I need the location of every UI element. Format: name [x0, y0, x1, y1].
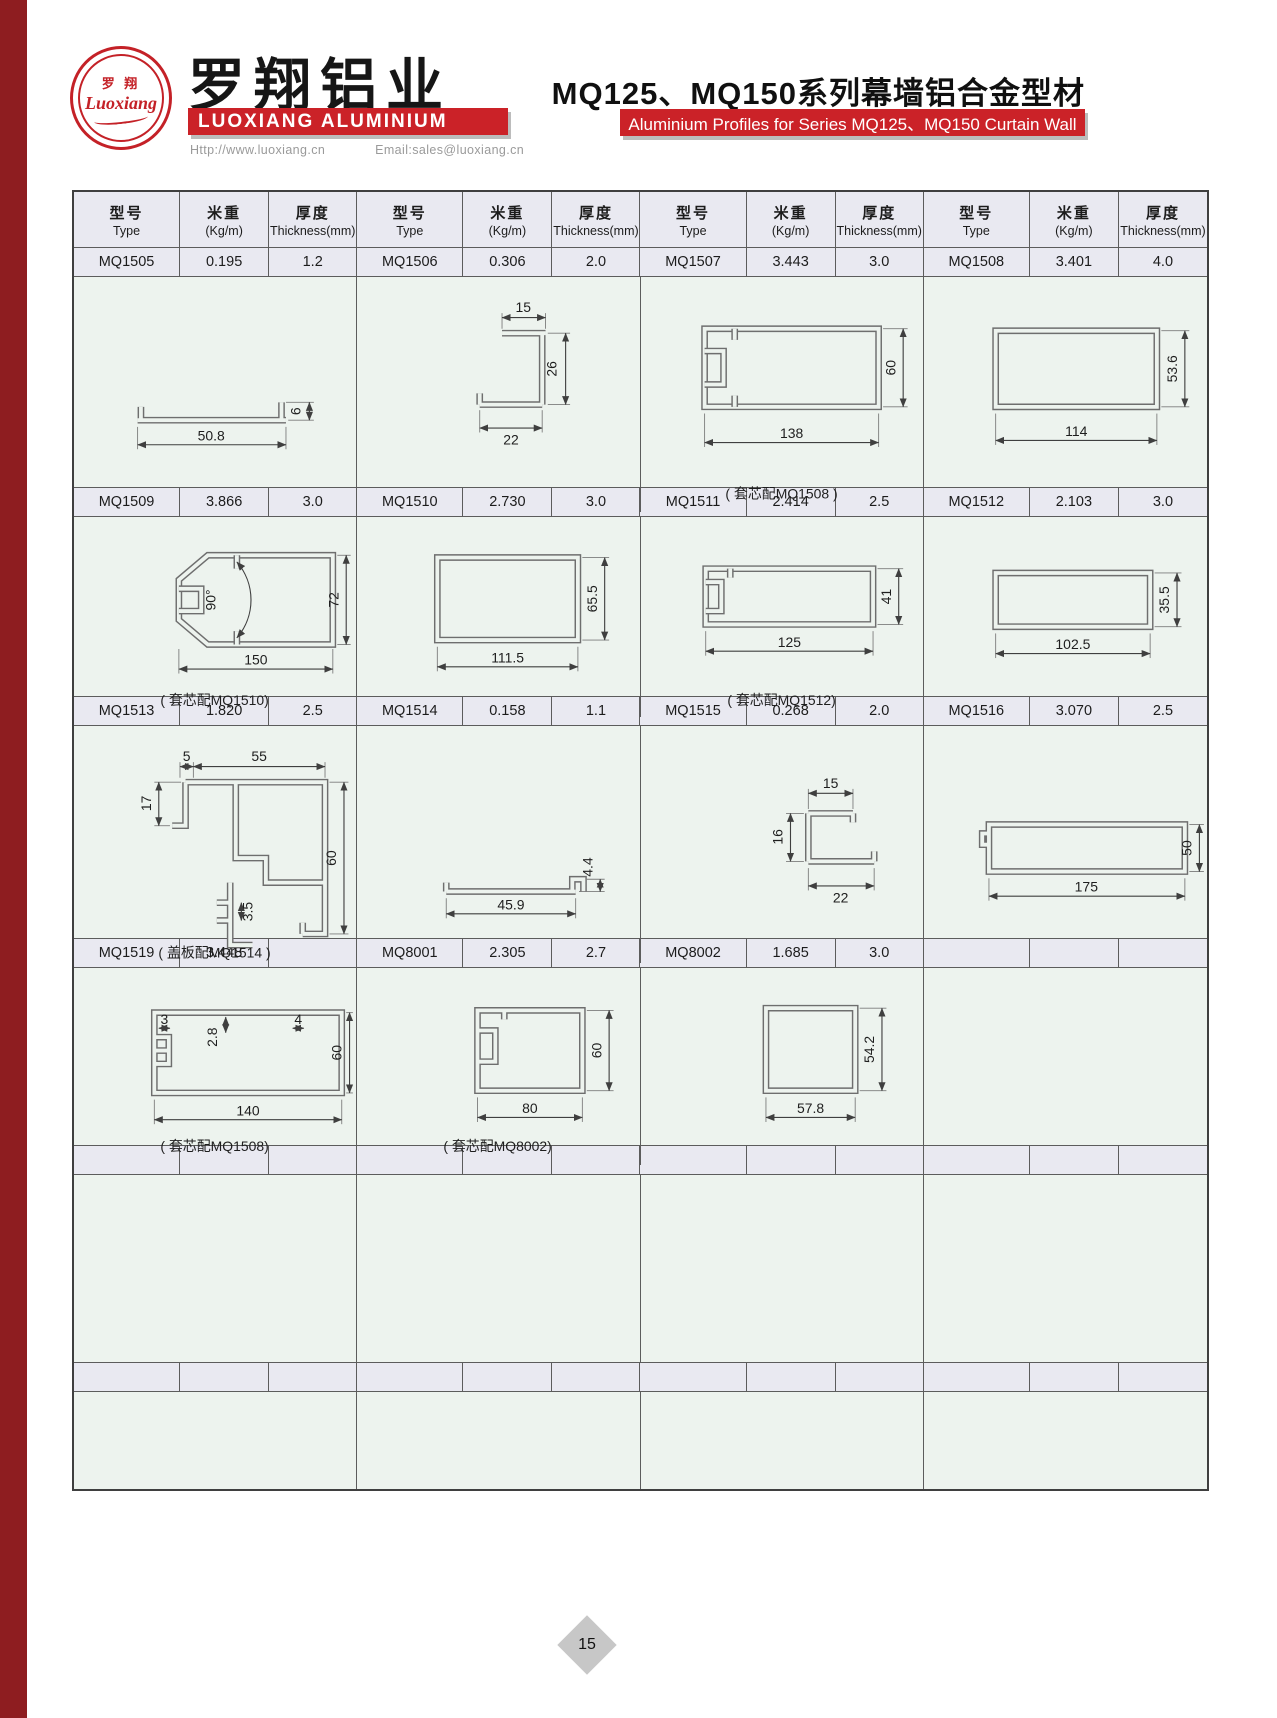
col-header-weight: 米重(Kg/m): [747, 192, 836, 247]
col-header-thickness: 厚度Thickness(mm): [552, 192, 640, 247]
profile-drawing-mq1512: 102.5 35.5: [924, 517, 1207, 717]
drawing-row-5-empty: [74, 1175, 1207, 1363]
profile-drawing-mq1509: 90° 150 72 ( 套芯配MQ1510): [74, 517, 356, 717]
col-header-type-cn: 型号: [393, 202, 427, 223]
col-header-weight: 米重(Kg/m): [180, 192, 269, 247]
drawing-cell-mq1515: 15 16 22: [641, 726, 924, 963]
dim-bottom: 22: [832, 890, 848, 906]
drawing-cell-mq8001: 80 60 ( 套芯配MQ8002): [357, 968, 640, 1165]
profile-drawing-mq1516: 175 50: [924, 726, 1207, 963]
cell-thickness: 1.2: [269, 248, 357, 276]
empty-drawing-cell: [357, 1175, 640, 1362]
cell-type: [74, 1363, 180, 1391]
company-logo: 罗 翔 Luoxiang: [70, 46, 172, 150]
col-header-weight-cn: 米重: [490, 202, 524, 223]
col-header-thickness-en: Thickness(mm): [1120, 224, 1205, 238]
cell-type: [357, 1363, 463, 1391]
drawing-cell-mq1511: 125 41 ( 套芯配MQ1512): [641, 517, 924, 717]
cell-type: [924, 1363, 1030, 1391]
cell-thickness: 4.0: [1119, 248, 1207, 276]
dim-width: 125: [777, 634, 801, 650]
dim-height: 6: [287, 407, 303, 415]
dim-height: 60: [882, 360, 898, 376]
dim-width: 45.9: [498, 896, 525, 912]
cell-thickness: [269, 1363, 357, 1391]
profile-table: 型号Type 米重(Kg/m) 厚度Thickness(mm) 型号Type 米…: [72, 190, 1209, 1491]
profile-drawing-mq1513: 5 55 17 60 3.5 ( 盖板配MQ1514 ): [74, 726, 356, 963]
cell-type: [640, 1363, 746, 1391]
dim-height: 41: [877, 589, 893, 605]
col-header-thickness-cn: 厚度: [1146, 202, 1180, 223]
col-header-weight-en: (Kg/m): [1055, 224, 1093, 238]
drawing-cell-mq1513: 5 55 17 60 3.5 ( 盖板配MQ1514 ): [74, 726, 357, 963]
drawing-cell-mq1514: 45.9 4.4: [357, 726, 640, 963]
col-header-weight-en: (Kg/m): [772, 224, 810, 238]
drawing-caption: ( 套芯配MQ1510): [160, 692, 268, 708]
drawing-cell-mq1505: 50.8 6: [74, 277, 357, 512]
cell-thickness: [552, 1363, 640, 1391]
dim-height: 54.2: [861, 1036, 877, 1063]
col-header-thickness-en: Thickness(mm): [836, 224, 921, 238]
dim-width: 150: [244, 652, 268, 668]
cell-weight: [747, 1363, 836, 1391]
dim-height: 53.6: [1164, 355, 1180, 382]
page-number: 15: [566, 1624, 608, 1666]
drawing-row-6-empty: [74, 1392, 1207, 1489]
dim-height: 35.5: [1156, 586, 1172, 613]
company-name-en-bar: LUOXIANG ALUMINIUM: [188, 108, 508, 135]
empty-drawing-cell: [924, 1392, 1207, 1489]
drawing-caption: ( 盖板配MQ1514 ): [158, 944, 270, 960]
table-header-row: 型号Type 米重(Kg/m) 厚度Thickness(mm) 型号Type 米…: [74, 192, 1207, 248]
profile-drawing-mq1515: 15 16 22: [641, 726, 923, 963]
cell-weight: 0.195: [180, 248, 269, 276]
col-header-weight: 米重(Kg/m): [1030, 192, 1119, 247]
dim-4: 4: [294, 1011, 302, 1027]
drawing-cell-mq1512: 102.5 35.5: [924, 517, 1207, 717]
col-header-thickness-en: Thickness(mm): [553, 224, 638, 238]
profile-drawing-mq1508: 114 53.6: [924, 277, 1207, 512]
dim-height: 72: [325, 592, 341, 608]
cell-type: MQ1505: [74, 248, 180, 276]
drawing-cell-mq8002: 57.8 54.2: [641, 968, 924, 1165]
cell-weight: 3.443: [747, 248, 836, 276]
profile-drawing-mq1519: 3 2.8 4 140 60 ( 套芯配MQ1508): [74, 968, 356, 1165]
dim-17: 17: [138, 795, 154, 811]
drawing-row-3: 5 55 17 60 3.5 ( 盖板配MQ1514 ): [74, 726, 1207, 939]
dim-width: 57.8: [797, 1100, 824, 1116]
dim-width: 140: [236, 1102, 260, 1118]
col-header-type: 型号Type: [924, 192, 1030, 247]
website-text: Http://www.luoxiang.cn: [190, 143, 325, 157]
profile-drawing-mq1510: 111.5 65.5: [357, 517, 639, 717]
dim-5: 5: [183, 748, 191, 764]
logo-script-text: Luoxiang: [85, 93, 157, 114]
dim-top: 15: [516, 299, 532, 315]
cell-thickness: [1119, 1363, 1207, 1391]
profile-drawing-mq1514: 45.9 4.4: [357, 726, 639, 963]
empty-drawing-cell: [74, 1175, 357, 1362]
profile-drawing-mq1511: 125 41 ( 套芯配MQ1512): [641, 517, 923, 717]
drawing-cell-mq1516: 175 50: [924, 726, 1207, 963]
empty-drawing-cell: [641, 1175, 924, 1362]
logo-cn-text: 罗 翔: [102, 73, 141, 92]
profile-drawing-mq1505: 50.8 6: [74, 277, 356, 512]
drawing-row-4: 3 2.8 4 140 60 ( 套芯配MQ1508): [74, 968, 1207, 1146]
cell-weight: [1030, 1363, 1119, 1391]
email-text: Email:sales@luoxiang.cn: [375, 143, 524, 157]
dim-height: 50: [1178, 840, 1194, 856]
company-logo-inner: 罗 翔 Luoxiang: [78, 54, 164, 142]
dim-bottom: 22: [503, 432, 519, 448]
left-red-strip: [0, 0, 27, 1718]
col-header-type: 型号Type: [357, 192, 463, 247]
col-header-thickness: 厚度Thickness(mm): [836, 192, 924, 247]
drawing-caption: ( 套芯配MQ8002): [444, 1138, 552, 1154]
dim-height: 60: [329, 1045, 345, 1061]
cell-type: MQ1506: [357, 248, 463, 276]
drawing-caption: ( 套芯配MQ1508 ): [725, 485, 837, 501]
dim-3p5: 3.5: [239, 902, 255, 922]
col-header-weight-cn: 米重: [774, 202, 808, 223]
drawing-cell-mq1506: 15 26 22: [357, 277, 640, 512]
col-header-weight-en: (Kg/m): [205, 224, 243, 238]
cell-type: MQ1508: [924, 248, 1030, 276]
drawing-cell-mq1507: 138 60 ( 套芯配MQ1508 ): [641, 277, 924, 512]
col-header-type: 型号Type: [640, 192, 746, 247]
profile-drawing-mq1507: 138 60 ( 套芯配MQ1508 ): [641, 277, 923, 512]
cell-weight: 3.401: [1030, 248, 1119, 276]
col-header-thickness: 厚度Thickness(mm): [1119, 192, 1207, 247]
col-header-thickness-cn: 厚度: [862, 202, 896, 223]
page-title-en-bar: Aluminium Profiles for Series MQ125、MQ15…: [620, 109, 1085, 136]
drawing-cell-mq1509: 90° 150 72 ( 套芯配MQ1510): [74, 517, 357, 717]
col-header-thickness-en: Thickness(mm): [270, 224, 355, 238]
dim-width: 102.5: [1055, 636, 1090, 652]
dim-angle: 90°: [203, 589, 219, 610]
drawing-caption: ( 套芯配MQ1512): [727, 692, 835, 708]
empty-drawing-cell: [357, 1392, 640, 1489]
col-header-type-cn: 型号: [676, 202, 710, 223]
drawing-cell-mq1508: 114 53.6: [924, 277, 1207, 512]
page-title-cn: MQ125、MQ150系列幕墙铝合金型材: [552, 68, 1085, 113]
drawing-cell-mq1510: 111.5 65.5: [357, 517, 640, 717]
col-header-type-en: Type: [113, 224, 140, 238]
dim-top: 15: [822, 775, 838, 791]
cell-weight: 0.306: [463, 248, 552, 276]
cell-thickness: [836, 1363, 924, 1391]
dim-left: 16: [769, 829, 785, 845]
cell-thickness: 2.0: [552, 248, 640, 276]
empty-drawing-cell: [74, 1392, 357, 1489]
profile-drawing-mq8001: 80 60 ( 套芯配MQ8002): [357, 968, 639, 1165]
dim-width: 114: [1065, 423, 1088, 439]
drawing-row-1: 50.8 6 15 26 22: [74, 277, 1207, 488]
cell-weight: [463, 1363, 552, 1391]
cell-weight: [180, 1363, 269, 1391]
col-header-type-cn: 型号: [110, 202, 144, 223]
col-header-type: 型号Type: [74, 192, 180, 247]
dim-width: 111.5: [491, 649, 524, 665]
empty-drawing-cell: [924, 1175, 1207, 1362]
drawing-cell-mq1519: 3 2.8 4 140 60 ( 套芯配MQ1508): [74, 968, 357, 1165]
drawing-caption: ( 套芯配MQ1508): [160, 1138, 268, 1154]
dim-mid: 26: [544, 361, 560, 377]
cell-thickness: 3.0: [836, 248, 924, 276]
dim-width: 80: [522, 1100, 538, 1116]
col-header-weight-cn: 米重: [207, 202, 241, 223]
col-header-weight-en: (Kg/m): [489, 224, 527, 238]
dim-width: 50.8: [198, 427, 225, 443]
dim-55: 55: [251, 748, 267, 764]
col-header-type-cn: 型号: [959, 202, 993, 223]
drawing-row-2: 90° 150 72 ( 套芯配MQ1510) 111.5: [74, 517, 1207, 697]
col-header-type-en: Type: [396, 224, 423, 238]
dim-width: 138: [779, 425, 803, 441]
col-header-thickness-cn: 厚度: [296, 202, 330, 223]
col-header-weight: 米重(Kg/m): [463, 192, 552, 247]
dim-height: 4.4: [580, 857, 596, 877]
empty-drawing-cell: [641, 1392, 924, 1489]
spec-row-6-empty: [74, 1363, 1207, 1392]
dim-60: 60: [323, 850, 339, 866]
col-header-thickness: 厚度Thickness(mm): [269, 192, 357, 247]
dim-2p8: 2.8: [204, 1027, 220, 1047]
profile-drawing-mq1506: 15 26 22: [357, 277, 639, 512]
dim-height: 65.5: [584, 585, 600, 612]
profile-drawing-mq8002: 57.8 54.2: [641, 968, 923, 1165]
empty-drawing-cell: [924, 968, 1207, 1165]
col-header-weight-cn: 米重: [1057, 202, 1091, 223]
col-header-type-en: Type: [679, 224, 706, 238]
contact-line: Http://www.luoxiang.cn Email:sales@luoxi…: [190, 143, 524, 157]
dim-height: 60: [589, 1043, 605, 1059]
dim-width: 175: [1074, 879, 1098, 895]
dim-3: 3: [160, 1011, 168, 1027]
col-header-type-en: Type: [963, 224, 990, 238]
cell-type: MQ1507: [640, 248, 746, 276]
catalog-page: 罗 翔 Luoxiang 罗翔铝业 LUOXIANG ALUMINIUM Htt…: [0, 0, 1277, 1718]
col-header-thickness-cn: 厚度: [579, 202, 613, 223]
spec-row-1: MQ1505 0.195 1.2 MQ1506 0.306 2.0 MQ1507…: [74, 248, 1207, 277]
